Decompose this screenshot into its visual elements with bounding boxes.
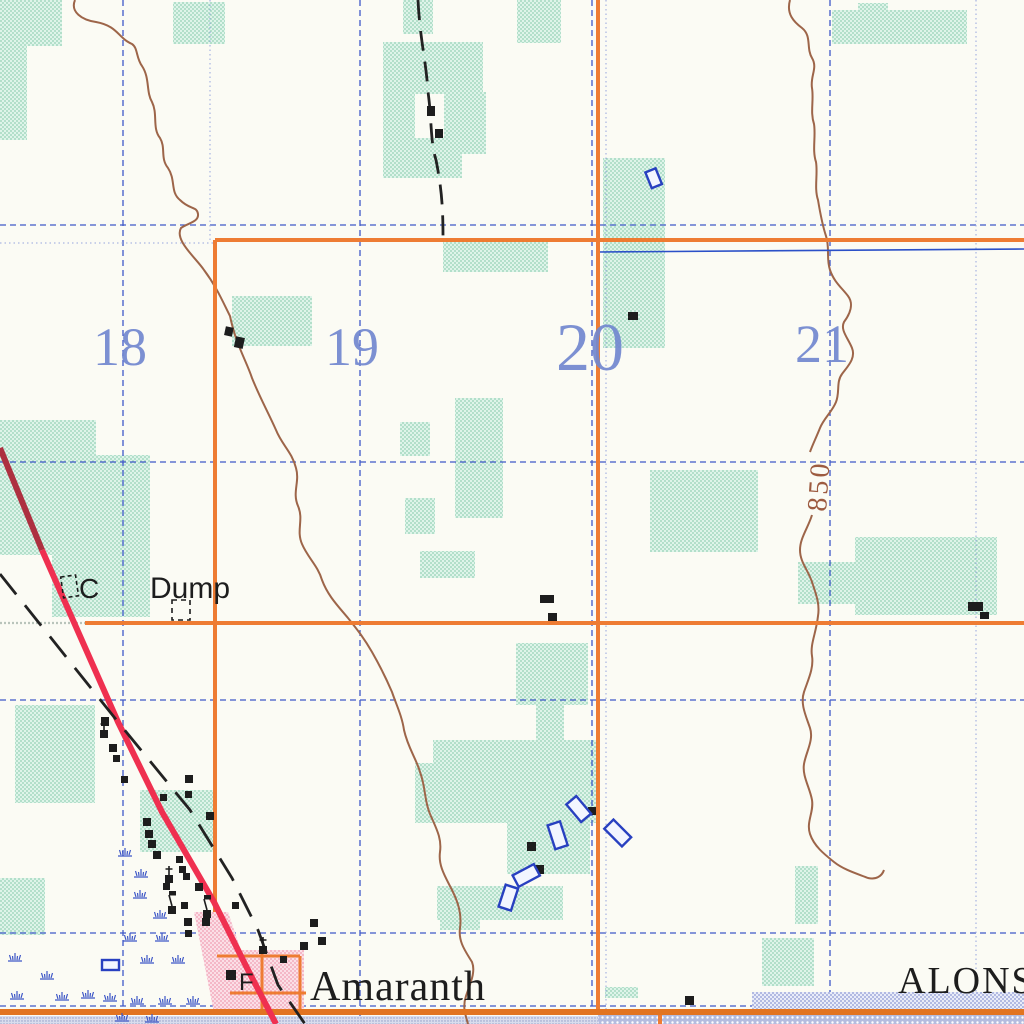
section-number-18: 18 — [93, 317, 147, 377]
municipality-name-label: ALONSA — [898, 960, 1024, 1002]
contour-elevation-label: 850 — [802, 459, 836, 512]
cemetery-label: C — [79, 573, 99, 604]
topographic-map[interactable]: 18 19 20 21 850 Dump C F Amaranth ALONSA — [0, 0, 1024, 1024]
f-building-label: F — [239, 969, 254, 996]
f-building-square — [226, 970, 236, 980]
section-number-20: 20 — [556, 309, 624, 385]
dump-label: Dump — [150, 572, 230, 605]
section-number-19: 19 — [325, 317, 379, 377]
town-name-label: Amaranth — [310, 964, 486, 1010]
map-canvas: 18 19 20 21 850 Dump C F Amaranth ALONSA — [0, 0, 1024, 1024]
section-number-21: 21 — [795, 314, 849, 374]
